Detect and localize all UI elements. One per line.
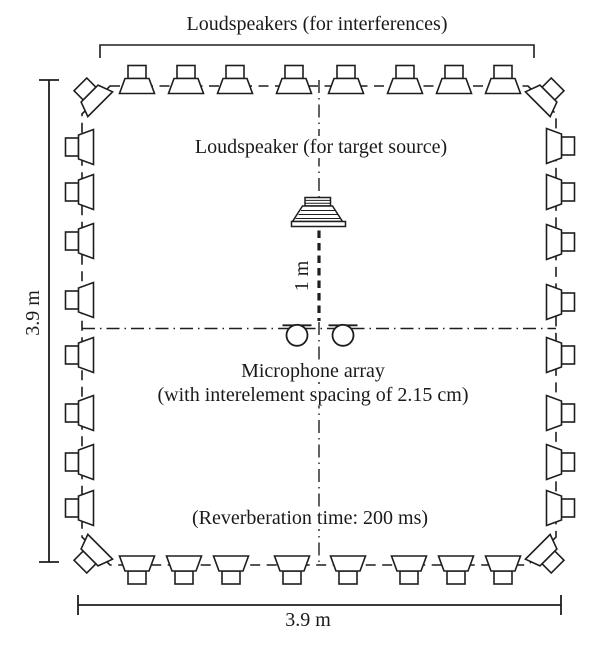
reverberation-label: (Reverberation time: 200 ms) <box>189 507 431 529</box>
loudspeaker-icon <box>66 396 94 431</box>
room-setup-diagram: Loudspeakers (for interferences) Loudspe… <box>0 0 600 650</box>
height-dimension-label: 3.9 m <box>22 287 44 339</box>
loudspeaker-icon <box>547 491 575 526</box>
loudspeaker-icon <box>547 175 575 210</box>
loudspeaker-icon <box>66 224 94 259</box>
loudspeaker-icon <box>167 556 202 584</box>
diagram-canvas <box>0 0 600 650</box>
loudspeaker-icon <box>392 556 427 584</box>
loudspeaker-icon <box>120 556 155 584</box>
loudspeaker-icon <box>525 72 570 117</box>
microphone-array <box>283 325 358 346</box>
width-dimension-label: 3.9 m <box>282 609 334 631</box>
microphone-icon <box>287 325 308 346</box>
loudspeaker-icon <box>169 66 204 94</box>
loudspeaker-icon <box>331 556 366 584</box>
target-loudspeaker-icon <box>292 198 346 227</box>
loudspeaker-icon <box>439 556 474 584</box>
loudspeaker-icon <box>66 283 94 318</box>
loudspeaker-icon <box>547 225 575 260</box>
microphone-icon <box>333 325 354 346</box>
loudspeaker-icon <box>275 556 310 584</box>
interference-bracket <box>100 45 534 58</box>
loudspeaker-icon <box>547 129 575 164</box>
loudspeaker-icon <box>218 66 253 94</box>
loudspeaker-icon <box>486 66 521 94</box>
loudspeaker-icon <box>68 72 113 117</box>
loudspeaker-icon <box>214 556 249 584</box>
target-source-label: Loudspeaker (for target source) <box>192 136 450 158</box>
loudspeaker-icon <box>388 66 423 94</box>
loudspeaker-icon <box>68 534 113 579</box>
mic-array-label-line1: Microphone array <box>238 360 388 382</box>
loudspeaker-icon <box>525 534 570 579</box>
loudspeaker-icon <box>120 66 155 94</box>
loudspeaker-icon <box>547 445 575 480</box>
loudspeaker-icon <box>547 285 575 320</box>
mic-array-label-line2: (with interelement spacing of 2.15 cm) <box>154 384 471 406</box>
loudspeaker-icon <box>66 175 94 210</box>
loudspeaker-icon <box>547 396 575 431</box>
loudspeaker-icon <box>66 491 94 526</box>
loudspeaker-icon <box>547 338 575 373</box>
loudspeaker-icon <box>277 66 312 94</box>
loudspeaker-icon <box>329 66 364 94</box>
distance-label: 1 m <box>291 258 313 295</box>
loudspeaker-icon <box>66 130 94 165</box>
loudspeaker-icon <box>66 445 94 480</box>
loudspeaker-icon <box>66 338 94 373</box>
loudspeaker-icon <box>486 556 521 584</box>
loudspeaker-icon <box>437 66 472 94</box>
interference-title: Loudspeakers (for interferences) <box>184 13 451 35</box>
